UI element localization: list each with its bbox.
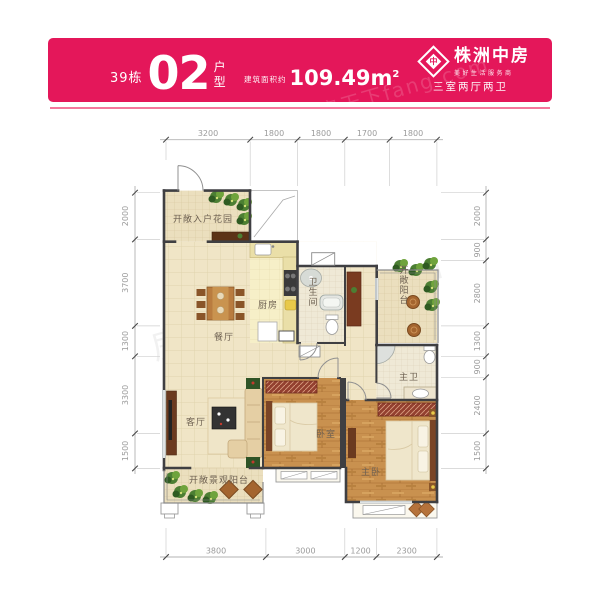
dim-bottom: 1200	[350, 547, 370, 556]
pillow	[418, 426, 428, 447]
pillow	[275, 407, 286, 424]
toilet-tank	[326, 315, 338, 320]
bedroom-items	[266, 381, 317, 451]
chair	[197, 289, 206, 296]
wardrobe	[378, 403, 436, 416]
view-balcony-label: 开敞景观阳台	[189, 474, 249, 486]
sofa	[245, 388, 262, 458]
dim-top: 1700	[357, 129, 377, 138]
wardrobe	[266, 381, 317, 393]
kitchen-sink	[255, 244, 271, 255]
sofa-chaise	[228, 440, 247, 458]
balcony-label: 开敞阳台	[398, 265, 409, 305]
kitchen-label: 厨房	[258, 299, 278, 311]
dim-left: 1500	[121, 441, 130, 461]
planter-plant	[238, 234, 243, 239]
entry-door	[178, 166, 203, 191]
dim-top: 3200	[198, 129, 218, 138]
stove	[284, 270, 297, 296]
toilet	[326, 320, 338, 335]
cabinet-plant	[351, 287, 357, 293]
burner	[285, 287, 290, 292]
dim-left: 1300	[121, 331, 130, 351]
header-ribbon-line	[50, 107, 550, 109]
chair	[236, 289, 245, 296]
master-bath-label: 主卫	[399, 371, 419, 383]
dresser	[348, 428, 356, 458]
dim-top: 1800	[403, 129, 423, 138]
plate	[217, 307, 224, 314]
chair	[197, 313, 206, 320]
hall-cabinet	[347, 272, 361, 326]
unit-number: 02	[148, 55, 210, 93]
burner	[291, 274, 296, 279]
stairwell	[250, 191, 298, 242]
bedroom-label: 卧室	[316, 428, 336, 440]
chair	[236, 301, 245, 308]
dining-items	[197, 287, 245, 320]
pillow	[275, 429, 286, 446]
stool	[407, 296, 420, 309]
plate	[217, 293, 224, 300]
lamp	[431, 485, 435, 489]
dim-right: 900	[473, 359, 482, 374]
dim-right: 2000	[473, 206, 482, 226]
building-number: 39栋	[110, 67, 143, 86]
kitchen-bowl	[285, 300, 296, 310]
dim-top: 1800	[264, 129, 284, 138]
table-decor	[226, 418, 229, 421]
dim-top: 1800	[311, 129, 331, 138]
bathtub-inner	[323, 298, 340, 307]
burner	[285, 274, 290, 279]
plant-flower	[252, 382, 255, 385]
dim-bottom: 2300	[397, 547, 417, 556]
lamp	[431, 411, 435, 415]
dining-label: 餐厅	[214, 331, 234, 343]
toilet-tank	[424, 346, 435, 351]
chair	[236, 313, 245, 320]
bed-headboard	[430, 420, 437, 481]
balcony-piers	[161, 503, 264, 518]
burner	[291, 287, 296, 292]
master-bedroom-label: 主卧	[361, 466, 381, 478]
dim-right: 2800	[473, 283, 482, 303]
unit-type-char-top: 户	[214, 60, 226, 75]
dim-right: 900	[473, 242, 482, 257]
bathroom-label: 卫生间	[307, 277, 318, 307]
unit-type-char-bottom: 型	[214, 75, 226, 90]
chair	[197, 301, 206, 308]
dim-left: 3700	[121, 273, 130, 293]
kitchen-flue	[279, 331, 294, 341]
dim-bottom: 3000	[295, 547, 315, 556]
living-label: 客厅	[186, 416, 206, 428]
table-decor	[217, 412, 220, 415]
table-decor	[220, 423, 222, 425]
area-label: 建筑面积约	[244, 74, 287, 85]
table-runner	[213, 287, 229, 320]
tv	[169, 400, 173, 440]
plant-flower	[252, 461, 255, 464]
flue-box	[312, 253, 335, 266]
dim-bottom: 3800	[206, 547, 226, 556]
dim-left: 3300	[121, 385, 130, 405]
pillow	[418, 451, 428, 472]
fridge	[258, 322, 277, 341]
entry-garden-label: 开敞入户花园	[173, 213, 233, 225]
stool	[408, 324, 421, 337]
dim-left: 2000	[121, 206, 130, 226]
faucet	[272, 245, 275, 248]
bedroom-bay-window	[276, 469, 340, 483]
sink	[413, 389, 429, 398]
unit-type-chars: 户 型	[214, 60, 226, 90]
void-above-bath	[298, 242, 377, 266]
unit-title: 39栋 02 户 型	[110, 55, 226, 93]
dim-right: 1300	[473, 331, 482, 351]
master-bay-window	[353, 501, 437, 518]
dim-right: 2400	[473, 395, 482, 415]
coffee-table	[212, 407, 236, 429]
bed-headboard	[266, 401, 273, 451]
header-banner: 39栋 02 户 型 建筑面积约 109.49m 2 中 株洲中房 美好生活服务…	[48, 38, 552, 102]
dim-right: 1500	[473, 441, 482, 461]
planter-box	[212, 232, 249, 242]
toilet	[424, 351, 435, 364]
